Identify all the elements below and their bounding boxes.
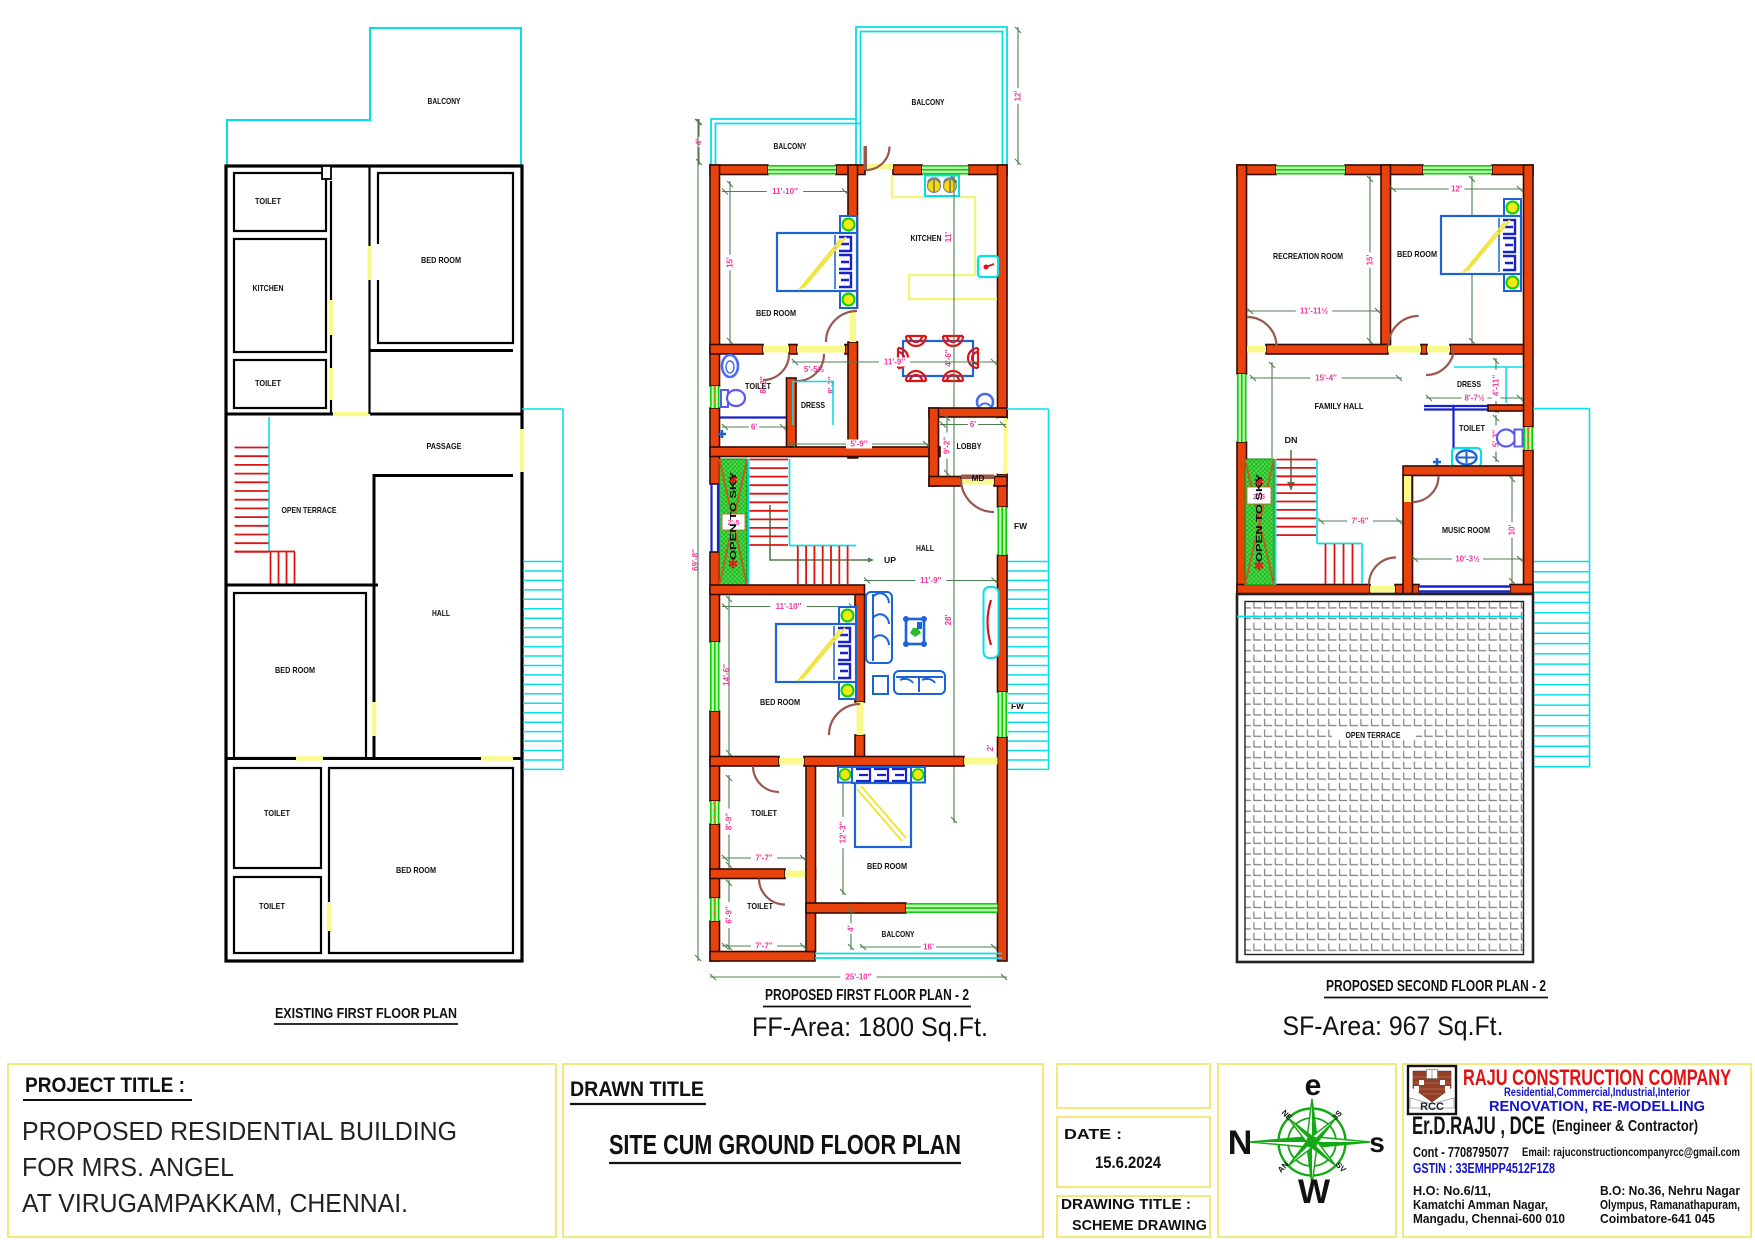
svg-text:KITCHEN: KITCHEN [911, 233, 942, 243]
svg-text:BED ROOM: BED ROOM [1397, 249, 1437, 259]
svg-text:Kamatchi Amman Nagar,: Kamatchi Amman Nagar, [1413, 1198, 1548, 1212]
svg-text:BED ROOM: BED ROOM [760, 697, 800, 707]
svg-text:e: e [1305, 1069, 1322, 1102]
svg-text:10'-3½: 10'-3½ [1455, 555, 1480, 564]
svg-text:Mangadu, Chennai-600 010: Mangadu, Chennai-600 010 [1413, 1212, 1565, 1226]
svg-text:HALL: HALL [432, 608, 450, 618]
svg-text:PROJECT TITLE :: PROJECT TITLE : [25, 1074, 185, 1097]
svg-text:BALCONY: BALCONY [774, 141, 807, 151]
svg-text:4': 4' [847, 925, 856, 931]
svg-text:DRAWING TITLE :: DRAWING TITLE : [1061, 1197, 1191, 1213]
svg-text:TOILET: TOILET [264, 808, 291, 818]
svg-text:SCHEME DRAWING: SCHEME DRAWING [1072, 1217, 1207, 1234]
svg-text:MD: MD [972, 474, 985, 483]
svg-text:5'-9″: 5'-9″ [850, 440, 867, 449]
svg-text:Cont - 7708795077: Cont - 7708795077 [1413, 1145, 1509, 1161]
svg-text:OPEN TO SKY: OPEN TO SKY [1254, 474, 1264, 562]
svg-text:15.6.2024: 15.6.2024 [1095, 1154, 1162, 1172]
svg-text:OPEN TERRACE: OPEN TERRACE [1346, 730, 1401, 740]
svg-text:EXISTING FIRST FLOOR PLAN: EXISTING FIRST FLOOR PLAN [275, 1006, 457, 1022]
svg-text:25'-10″: 25'-10″ [845, 973, 871, 982]
svg-text:5'-5½: 5'-5½ [804, 365, 824, 374]
svg-text:N: N [1228, 1124, 1253, 1162]
svg-text:SF-Area: 967 Sq.Ft.: SF-Area: 967 Sq.Ft. [1283, 1011, 1504, 1041]
svg-text:28': 28' [944, 615, 953, 626]
svg-text:FAMILY HALL: FAMILY HALL [1315, 401, 1364, 411]
svg-text:BED ROOM: BED ROOM [396, 865, 436, 875]
svg-text:11'-9″: 11'-9″ [884, 358, 905, 367]
svg-text:B.O: No.36, Nehru Nagar: B.O: No.36, Nehru Nagar [1600, 1184, 1740, 1198]
svg-text:69'-8″: 69'-8″ [691, 549, 700, 571]
svg-text:OPEN TO SKY: OPEN TO SKY [728, 472, 738, 560]
svg-text:11': 11' [944, 232, 953, 242]
svg-text:MUSIC ROOM: MUSIC ROOM [1442, 525, 1490, 535]
svg-text:W: W [1298, 1173, 1331, 1211]
svg-text:FOR MRS. ANGEL: FOR MRS. ANGEL [22, 1152, 234, 1182]
svg-text:Coimbatore-641 045: Coimbatore-641 045 [1600, 1212, 1715, 1226]
svg-text:4': 4' [695, 139, 704, 145]
svg-text:DRAWN TITLE: DRAWN TITLE [570, 1078, 704, 1101]
svg-text:H.O: No.6/11,: H.O: No.6/11, [1413, 1184, 1491, 1198]
svg-text:8'-2″: 8'-2″ [759, 376, 768, 393]
svg-text:8'-2″: 8'-2″ [827, 376, 836, 393]
svg-text:s: s [1369, 1127, 1385, 1158]
svg-text:Er.D.RAJU , DCE: Er.D.RAJU , DCE [1412, 1112, 1545, 1140]
svg-text:SITE CUM GROUND FLOOR PLAN: SITE CUM GROUND FLOOR PLAN [609, 1129, 961, 1160]
svg-text:11'-11½: 11'-11½ [1300, 307, 1328, 316]
svg-text:Olympus, Ramanathapuram,: Olympus, Ramanathapuram, [1600, 1198, 1740, 1212]
svg-text:11'-10″: 11'-10″ [772, 187, 798, 196]
svg-text:DRESS: DRESS [1457, 380, 1481, 389]
svg-text:DN: DN [1285, 435, 1298, 445]
svg-text:16': 16' [923, 943, 934, 952]
svg-text:TOILET: TOILET [747, 901, 774, 911]
svg-text:6': 6' [751, 423, 757, 432]
svg-text:Email: rajuconstructioncompany: Email: rajuconstructioncompanyrcc@gmail.… [1522, 1145, 1740, 1159]
svg-text:DATE :: DATE : [1064, 1126, 1122, 1143]
svg-text:BALCONY: BALCONY [882, 929, 915, 939]
svg-text:4'-11″: 4'-11″ [1492, 375, 1501, 396]
svg-text:7'-6″: 7'-6″ [1351, 517, 1368, 526]
svg-text:PROPOSED FIRST FLOOR PLAN - 2: PROPOSED FIRST FLOOR PLAN - 2 [765, 987, 969, 1004]
svg-text:AT VIRUGAMPAKKAM, CHENNAI.: AT VIRUGAMPAKKAM, CHENNAI. [22, 1188, 408, 1218]
svg-text:BALCONY: BALCONY [912, 97, 945, 107]
svg-text:DRESS: DRESS [801, 401, 825, 410]
svg-text:11'-9″: 11'-9″ [920, 576, 941, 585]
svg-text:6'-9″: 6'-9″ [725, 906, 734, 923]
svg-text:BED ROOM: BED ROOM [421, 255, 461, 265]
svg-text:OPEN TERRACE: OPEN TERRACE [282, 505, 337, 515]
svg-text:FW: FW [1014, 521, 1027, 531]
svg-text:TOILET: TOILET [1459, 423, 1486, 433]
svg-text:HALL: HALL [916, 543, 934, 553]
svg-text:GSTIN : 33EMHPP4512F1Z8: GSTIN : 33EMHPP4512F1Z8 [1413, 1160, 1555, 1177]
svg-text:FW: FW [1011, 701, 1024, 711]
svg-text:9'-2″: 9'-2″ [943, 437, 952, 454]
svg-text:RECREATION ROOM: RECREATION ROOM [1273, 251, 1343, 261]
svg-text:TOILET: TOILET [751, 808, 778, 818]
svg-text:12': 12' [1451, 185, 1462, 194]
svg-text:6': 6' [970, 420, 976, 429]
svg-text:8'-9″: 8'-9″ [725, 813, 734, 830]
svg-text:15'-4″: 15'-4″ [1315, 374, 1337, 383]
svg-text:7'-7″: 7'-7″ [755, 854, 772, 863]
svg-text:PROPOSED SECOND FLOOR PLAN - 2: PROPOSED SECOND FLOOR PLAN - 2 [1326, 978, 1546, 995]
svg-text:15': 15' [1366, 255, 1375, 266]
svg-text:LOBBY: LOBBY [957, 441, 982, 451]
svg-text:12': 12' [1014, 91, 1023, 102]
svg-text:(Engineer & Contractor): (Engineer & Contractor) [1552, 1118, 1698, 1135]
svg-text:BALCONY: BALCONY [428, 96, 461, 106]
svg-text:PROPOSED RESIDENTIAL BUILDING: PROPOSED RESIDENTIAL BUILDING [22, 1116, 457, 1146]
svg-text:8'-7½: 8'-7½ [1464, 394, 1484, 403]
svg-text:TOILET: TOILET [255, 378, 282, 388]
svg-text:BED ROOM: BED ROOM [867, 861, 907, 871]
svg-text:10': 10' [1508, 525, 1517, 536]
svg-text:14'-6″: 14'-6″ [722, 664, 731, 686]
svg-text:PASSAGE: PASSAGE [427, 441, 462, 451]
svg-text:BED ROOM: BED ROOM [756, 308, 796, 318]
svg-text:TOILET: TOILET [255, 196, 282, 206]
svg-text:12'-3″: 12'-3″ [839, 821, 848, 843]
svg-text:7'-7″: 7'-7″ [755, 942, 772, 951]
svg-text:KITCHEN: KITCHEN [253, 283, 284, 293]
svg-text:TOILET: TOILET [259, 901, 286, 911]
svg-text:15': 15' [726, 257, 735, 268]
svg-text:UP: UP [884, 555, 896, 565]
svg-text:BED ROOM: BED ROOM [275, 665, 315, 675]
svg-text:FF-Area: 1800 Sq.Ft.: FF-Area: 1800 Sq.Ft. [752, 1012, 988, 1042]
svg-text:4'-6″: 4'-6″ [944, 349, 953, 366]
svg-text:11'-10″: 11'-10″ [776, 602, 802, 611]
svg-text:2': 2' [986, 745, 995, 751]
